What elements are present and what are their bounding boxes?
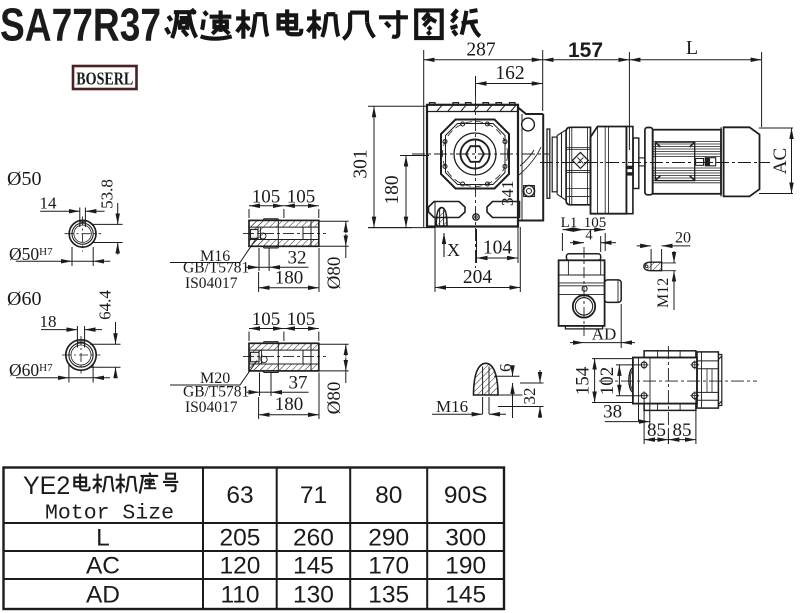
svg-text:287: 287 xyxy=(466,40,496,61)
svg-text:AC: AC xyxy=(770,148,791,174)
svg-text:Motor Size: Motor Size xyxy=(45,502,174,526)
svg-text:130: 130 xyxy=(293,582,334,609)
svg-text:80: 80 xyxy=(375,482,402,509)
svg-text:85: 85 xyxy=(647,420,666,441)
svg-text:301: 301 xyxy=(351,149,372,178)
svg-text:105: 105 xyxy=(287,187,316,208)
svg-text:Ø80: Ø80 xyxy=(324,382,345,415)
svg-text:37: 37 xyxy=(289,373,308,394)
svg-text:102: 102 xyxy=(597,367,618,396)
svg-text:300: 300 xyxy=(445,525,486,552)
svg-text:AD: AD xyxy=(86,582,120,609)
svg-text:18: 18 xyxy=(40,312,57,331)
svg-text:32: 32 xyxy=(520,388,539,405)
svg-text:X: X xyxy=(447,240,460,260)
svg-text:L: L xyxy=(686,37,698,59)
svg-text:104: 104 xyxy=(483,238,513,259)
svg-text:154: 154 xyxy=(573,366,594,395)
svg-text:M12: M12 xyxy=(655,278,672,308)
svg-text:GB/T5781: GB/T5781 xyxy=(183,384,249,401)
svg-text:SA77R37: SA77R37 xyxy=(0,0,161,51)
svg-text:260: 260 xyxy=(293,525,334,552)
svg-text:38: 38 xyxy=(603,402,622,423)
svg-text:180: 180 xyxy=(382,175,403,204)
svg-text:105: 105 xyxy=(252,309,281,330)
svg-text:135: 135 xyxy=(368,582,409,609)
svg-text:180: 180 xyxy=(275,268,304,289)
svg-text:L1: L1 xyxy=(561,215,578,231)
svg-text:71: 71 xyxy=(300,482,327,509)
svg-text:20: 20 xyxy=(675,230,691,247)
svg-text:341: 341 xyxy=(498,181,517,207)
svg-text:YE2: YE2 xyxy=(23,472,70,500)
svg-text:32: 32 xyxy=(288,248,307,269)
svg-text:53.8: 53.8 xyxy=(98,179,117,209)
svg-text:BOSERL: BOSERL xyxy=(76,69,133,89)
svg-text:162: 162 xyxy=(495,63,524,84)
svg-text:Ø80: Ø80 xyxy=(324,257,345,290)
svg-text:64.4: 64.4 xyxy=(95,290,114,320)
svg-text:180: 180 xyxy=(275,394,304,415)
svg-text:170: 170 xyxy=(368,553,409,580)
svg-text:IS04017: IS04017 xyxy=(185,275,238,292)
svg-text:190: 190 xyxy=(445,553,486,580)
svg-text:204: 204 xyxy=(463,267,493,288)
svg-text:AC: AC xyxy=(86,553,120,580)
svg-text:Ø50: Ø50 xyxy=(7,168,41,190)
svg-text:M16: M16 xyxy=(436,397,468,416)
svg-text:IS04017: IS04017 xyxy=(185,399,238,416)
svg-text:157: 157 xyxy=(568,39,603,62)
svg-text:85: 85 xyxy=(673,420,692,441)
svg-text:4: 4 xyxy=(585,228,593,244)
svg-text:105: 105 xyxy=(287,309,316,330)
svg-text:AD: AD xyxy=(592,325,617,344)
svg-text:290: 290 xyxy=(368,525,409,552)
svg-text:110: 110 xyxy=(220,582,259,609)
svg-text:90S: 90S xyxy=(444,482,488,509)
svg-text:Ø60: Ø60 xyxy=(7,288,41,310)
svg-text:105: 105 xyxy=(252,187,281,208)
svg-text:L: L xyxy=(96,525,110,552)
svg-text:6: 6 xyxy=(496,364,515,373)
svg-text:205: 205 xyxy=(220,525,261,552)
svg-text:14: 14 xyxy=(40,194,58,213)
svg-text:120: 120 xyxy=(220,553,261,580)
svg-text:145: 145 xyxy=(445,582,486,609)
svg-text:63: 63 xyxy=(226,482,253,509)
svg-text:145: 145 xyxy=(293,553,334,580)
svg-text:Ø60H7: Ø60H7 xyxy=(9,360,53,380)
